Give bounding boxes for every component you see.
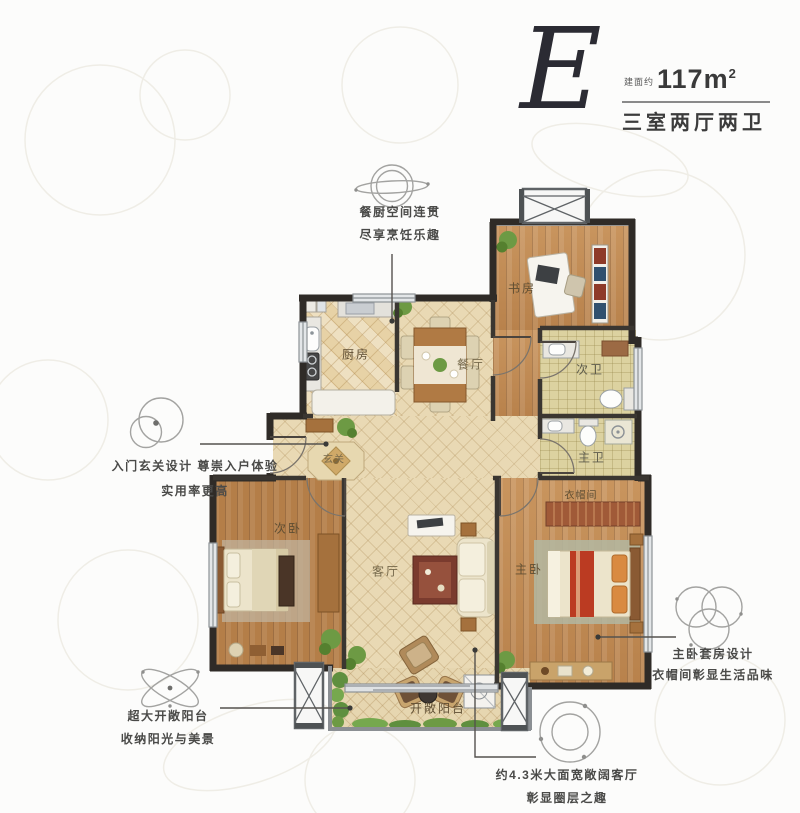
- annotation-line: 超大开敞阳台: [121, 705, 216, 728]
- annotation-line: 约4.3米大面宽敞阔客厅: [496, 764, 639, 787]
- ac-platform-right: [502, 673, 527, 730]
- annotation-foyer: 入门玄关设计 尊崇入户体验 实用率更高: [112, 454, 279, 504]
- annotation-line: 主卧套房设计: [652, 644, 774, 665]
- annotation-master-suite: 主卧套房设计 衣帽间彰显生活品味: [652, 644, 774, 686]
- room-label-foyer: 玄关: [323, 451, 345, 466]
- room-label-study: 书房: [508, 280, 536, 297]
- ac-platform-left: [295, 663, 323, 728]
- room-label-kitchen: 厨房: [342, 346, 370, 363]
- area-row: 建面约 117m2: [624, 66, 737, 93]
- annotation-line: 实用率更高: [112, 479, 279, 504]
- living-furniture: [344, 515, 495, 675]
- annotation-living: 约4.3米大面宽敞阔客厅 彰显圈层之趣: [496, 764, 639, 810]
- bath-window: [634, 348, 642, 410]
- area-prefix: 建面约: [624, 75, 654, 93]
- second-bedroom-window: [209, 543, 217, 627]
- room-label-bath-master: 主卫: [578, 449, 606, 466]
- annotation-line: 收纳阳光与美景: [121, 728, 216, 751]
- area-superscript: 2: [729, 66, 737, 81]
- master-bedroom-furniture: [495, 534, 644, 680]
- layout-description: 三室两厅两卫: [622, 106, 766, 135]
- annotation-line: 衣帽间彰显生活品味: [652, 665, 774, 686]
- annotation-line: 彰显圈层之趣: [496, 787, 639, 810]
- annotation-line: 入门玄关设计 尊崇入户体验: [112, 454, 279, 479]
- dotted-circle-icon: [539, 702, 600, 762]
- annotation-line: 餐厨空间连贯: [359, 201, 440, 224]
- second-bedroom-furniture: [215, 534, 341, 657]
- annotation-balcony: 超大开敞阳台 收纳阳光与美景: [121, 705, 216, 751]
- triple-circle-icon: [675, 587, 742, 649]
- area-value: 117m2: [657, 66, 737, 93]
- room-label-balcony: 开敞阳台: [410, 700, 466, 717]
- room-label-dining: 餐厅: [457, 356, 485, 373]
- annotation-line: 尽享烹饪乐趣: [359, 224, 440, 247]
- room-label-cloakroom: 衣帽间: [565, 487, 598, 502]
- foyer-furniture: [306, 418, 364, 480]
- room-label-bedroom-master: 主卧: [515, 561, 543, 578]
- header-divider: [622, 101, 770, 103]
- north-window: [353, 294, 415, 302]
- plan-letter: E: [520, 14, 602, 126]
- room-label-bath-second: 次卫: [576, 361, 604, 378]
- room-label-bedroom-second: 次卧: [274, 520, 302, 537]
- kitchen-window: [299, 322, 307, 362]
- study-furniture: [497, 231, 609, 323]
- master-bedroom-window: [644, 536, 652, 652]
- room-label-living: 客厅: [372, 563, 400, 580]
- ac-platform-top: [519, 189, 590, 223]
- cloakroom-wardrobe: [546, 502, 640, 526]
- annotation-kitchen-dining: 餐厨空间连贯 尽享烹饪乐趣: [359, 201, 440, 247]
- double-circle-icon: [131, 398, 184, 448]
- area-number: 117m: [657, 64, 729, 94]
- floorplan-page: { "header": { "plan_letter": "E", "area_…: [0, 0, 800, 813]
